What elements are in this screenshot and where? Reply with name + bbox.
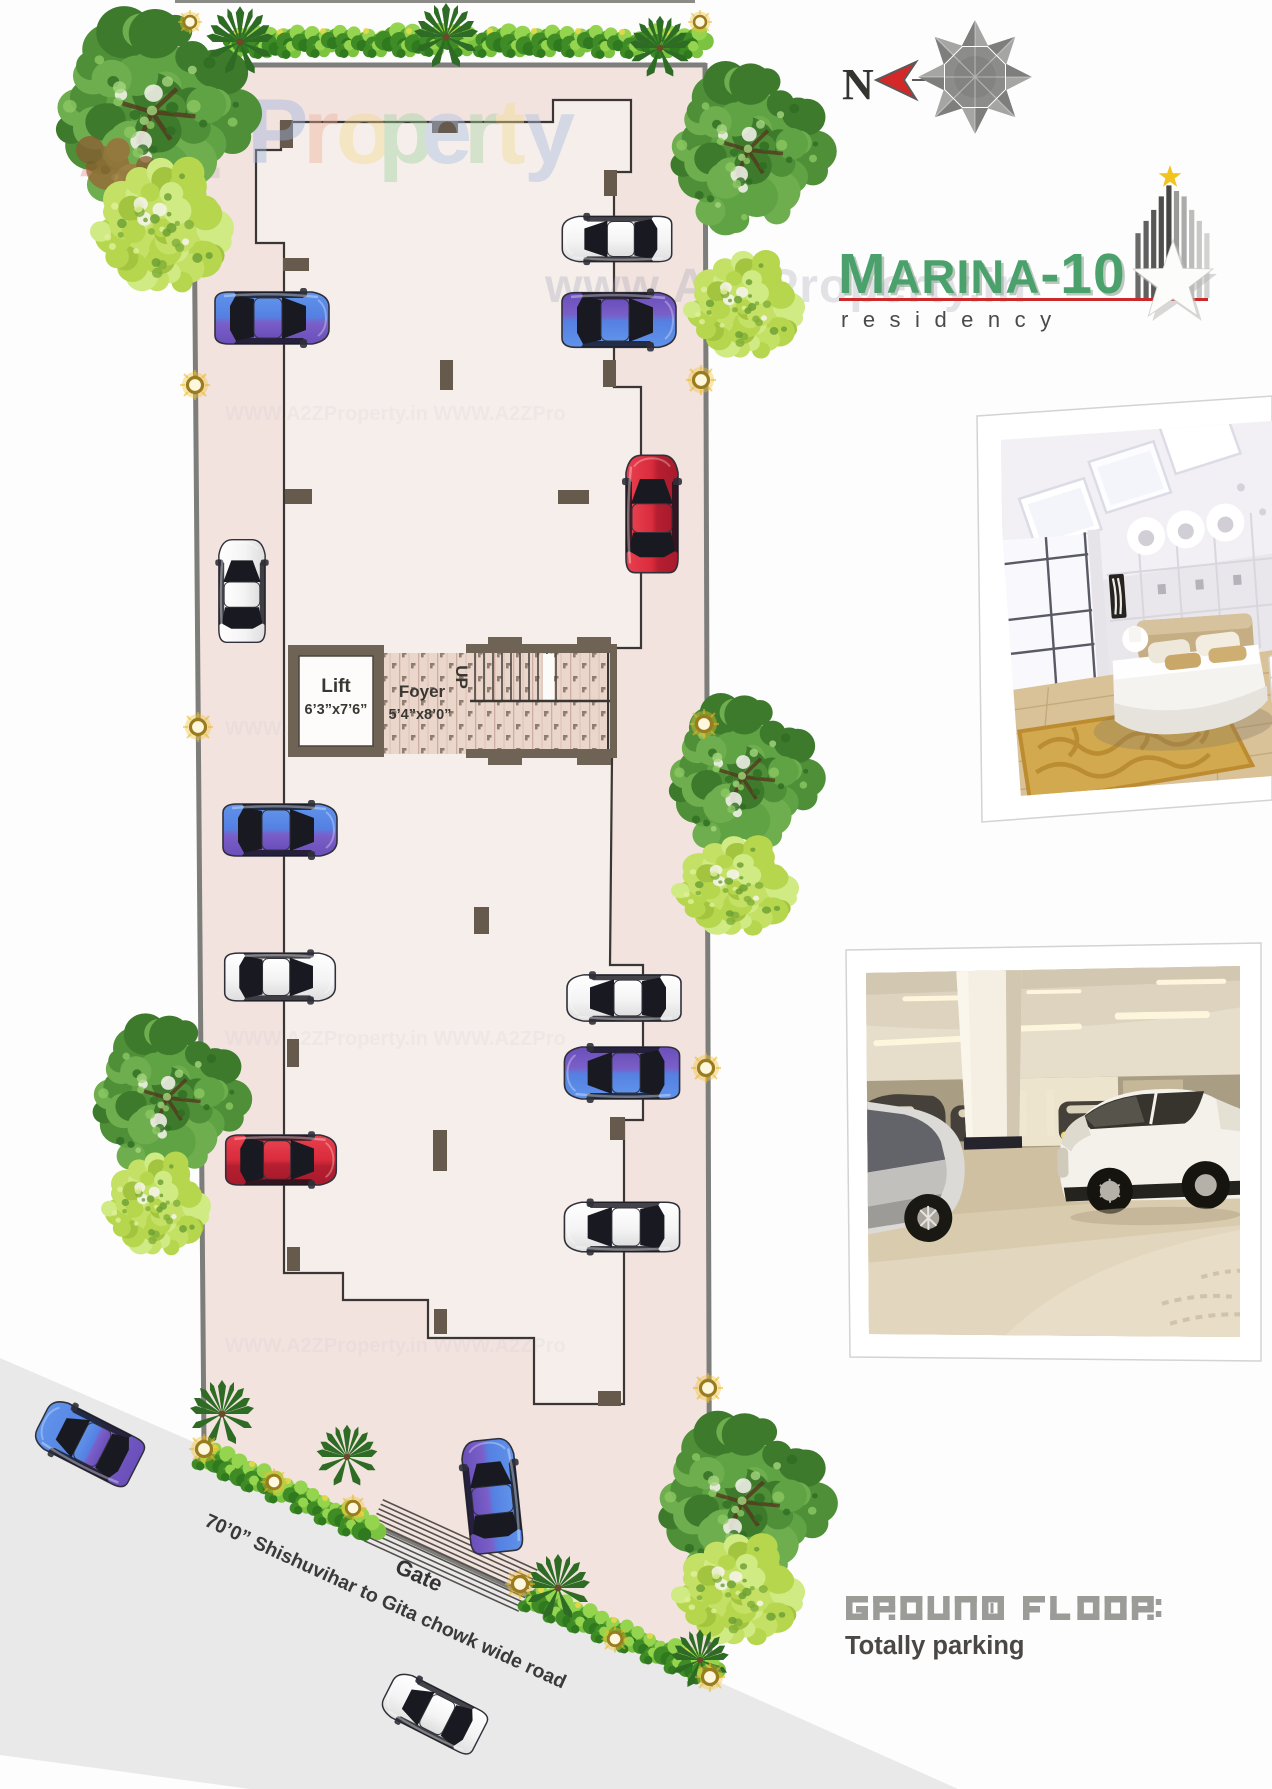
svg-text:6’3”x7’6”: 6’3”x7’6” [305, 702, 368, 718]
svg-text:5’4”x8’0”: 5’4”x8’0” [389, 707, 452, 723]
svg-text:WWW.A2ZProperty.in WWW.A2ZPro: WWW.A2ZProperty.in WWW.A2ZPro [225, 1335, 566, 1357]
svg-text:N: N [842, 60, 874, 109]
svg-text:y: y [524, 81, 575, 183]
svg-text:Foyer: Foyer [399, 682, 446, 701]
svg-text:MARINA-10: MARINA-10 [838, 242, 1126, 306]
svg-text:Totally parking: Totally parking [845, 1632, 1024, 1660]
svg-text:Lift: Lift [321, 676, 351, 697]
svg-text:P: P [247, 81, 308, 183]
svg-text:WWW.A2ZProperty.in WWW.A2ZPro: WWW.A2ZProperty.in WWW.A2ZPro [225, 403, 566, 425]
svg-text:t: t [495, 81, 526, 183]
svg-text:r: r [303, 81, 339, 183]
svg-text:WWW.A2ZProperty.in WWW.A2ZPro: WWW.A2ZProperty.in WWW.A2ZPro [225, 1028, 566, 1050]
svg-text:UP: UP [452, 665, 471, 689]
svg-text:residency: residency [841, 307, 1066, 332]
